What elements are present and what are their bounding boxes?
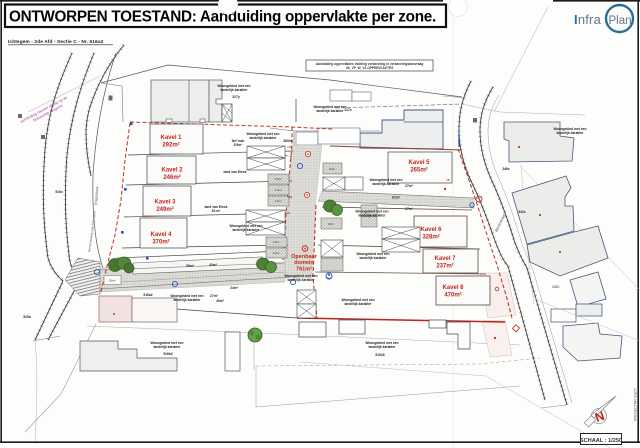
svg-text:10m²: 10m²	[329, 167, 335, 171]
svg-text:landelijk karakter: landelijk karakter	[373, 182, 401, 186]
svg-text:10m²: 10m²	[328, 222, 334, 226]
svg-text:40m²: 40m²	[216, 299, 225, 303]
svg-text:5.5m²: 5.5m²	[234, 143, 244, 147]
svg-text:landelijk karakter: landelijk karakter	[221, 88, 249, 92]
svg-text:24m²: 24m²	[230, 286, 239, 290]
svg-text:SCHAAL : 1/250: SCHAAL : 1/250	[580, 438, 622, 444]
svg-text:55m²: 55m²	[186, 264, 195, 268]
svg-text:land van Eieck: land van Eieck	[224, 170, 247, 174]
svg-text:516a2: 516a2	[143, 293, 152, 297]
svg-text:249m²: 249m²	[156, 206, 173, 213]
svg-text:<18: <18	[287, 145, 292, 149]
svg-text:Kavel 5: Kavel 5	[408, 160, 430, 166]
svg-text:Kavel 8: Kavel 8	[442, 285, 464, 291]
svg-text:342x: 342x	[518, 210, 526, 214]
svg-text:265m²: 265m²	[410, 167, 427, 174]
svg-text:1.6m²: 1.6m²	[274, 199, 281, 203]
svg-text:landelijk karakter: landelijk karakter	[174, 298, 202, 302]
svg-text:246x: 246x	[502, 167, 510, 171]
svg-text:43m²: 43m²	[209, 263, 218, 267]
svg-text:19m²: 19m²	[109, 279, 116, 283]
svg-text:landelijk karakter: landelijk karakter	[345, 302, 373, 306]
svg-text:Kavel 6: Kavel 6	[420, 227, 442, 233]
svg-text:317y: 317y	[232, 95, 240, 99]
svg-text:landelijk karakter: landelijk karakter	[369, 345, 397, 349]
svg-text:landelijk karakter: landelijk karakter	[288, 278, 316, 282]
svg-text:landelijk karakter: landelijk karakter	[359, 214, 387, 218]
svg-text:Kavel 7: Kavel 7	[434, 256, 456, 262]
svg-text:217x: 217x	[344, 108, 352, 112]
svg-text:516b2: 516b2	[163, 352, 173, 356]
svg-text:PROJECTNR 51677: PROJECTNR 51677	[634, 388, 638, 421]
svg-text:61m²: 61m²	[392, 196, 401, 200]
svg-text:328m²: 328m²	[422, 234, 439, 241]
svg-text:domein: domein	[294, 260, 314, 266]
svg-text:370m²: 370m²	[152, 239, 169, 246]
svg-text:27m²: 27m²	[405, 184, 414, 188]
svg-text:<18: <18	[287, 195, 292, 199]
svg-text:237m²: 237m²	[436, 263, 453, 270]
svg-text:363m²: 363m²	[283, 139, 293, 143]
svg-text:landelijk karakter: landelijk karakter	[557, 131, 585, 135]
svg-text:Infra: Infra	[574, 12, 602, 27]
svg-text:27m²: 27m²	[405, 207, 414, 211]
svg-text:51·m²: 51·m²	[212, 209, 222, 213]
svg-text:<8: <8	[446, 178, 450, 182]
svg-text:761m²: 761m²	[296, 266, 312, 273]
svg-text:515a: 515a	[23, 315, 31, 319]
svg-text:1.3m²: 1.3m²	[274, 188, 281, 192]
svg-text:Kavel 3: Kavel 3	[154, 200, 176, 206]
svg-text:VA_VP_W_V2-OPPERVLAKTES: VA_VP_W_V2-OPPERVLAKTES	[346, 66, 394, 70]
svg-text:1.5m²: 1.5m²	[274, 177, 281, 181]
svg-text:516x: 516x	[55, 190, 63, 194]
svg-text:landelijk karakter: landelijk karakter	[317, 109, 345, 113]
svg-text:3420: 3420	[552, 285, 560, 289]
svg-text:Kavel 1: Kavel 1	[160, 135, 182, 141]
svg-text:470m²: 470m²	[444, 292, 461, 299]
svg-text:landelijk karakter: landelijk karakter	[154, 345, 182, 349]
svg-text:Kavel 4: Kavel 4	[150, 232, 172, 238]
svg-text:landelijk karakter: landelijk karakter	[233, 228, 261, 232]
svg-text:51643: 51643	[375, 353, 384, 357]
svg-text:27m²: 27m²	[210, 294, 219, 298]
svg-text:Ichtegem - 2de Afd - Sectie C: Ichtegem - 2de Afd - Sectie C - Nr. 516a…	[8, 39, 104, 45]
svg-text:12m²: 12m²	[273, 251, 279, 255]
svg-text:292m²: 292m²	[162, 142, 179, 149]
svg-text:landelijk karakter: landelijk karakter	[250, 136, 278, 140]
svg-text:Aanduiding oppervlaktes indeli: Aanduiding oppervlaktes indeling verkave…	[316, 62, 424, 66]
svg-text:Plan: Plan	[608, 15, 631, 27]
svg-text:landelijk karakter: landelijk karakter	[360, 256, 388, 260]
svg-text:246m²: 246m²	[163, 174, 180, 181]
svg-text:14m²: 14m²	[273, 240, 279, 244]
svg-text:Kavel 2: Kavel 2	[161, 168, 183, 174]
